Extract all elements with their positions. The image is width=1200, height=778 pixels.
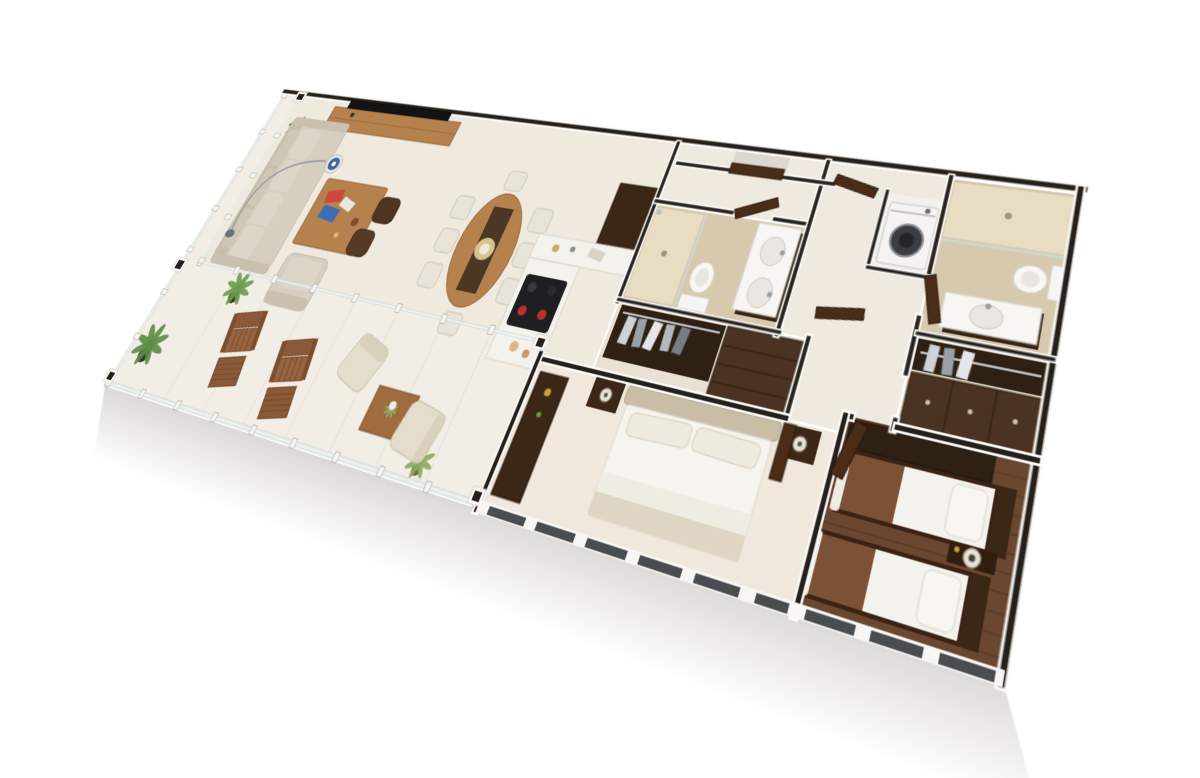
floor-plan-stage <box>0 0 1200 778</box>
corridor-door <box>815 307 864 320</box>
floor-plan-render <box>97 88 1085 690</box>
plan-perspective-wrapper <box>97 88 1085 690</box>
